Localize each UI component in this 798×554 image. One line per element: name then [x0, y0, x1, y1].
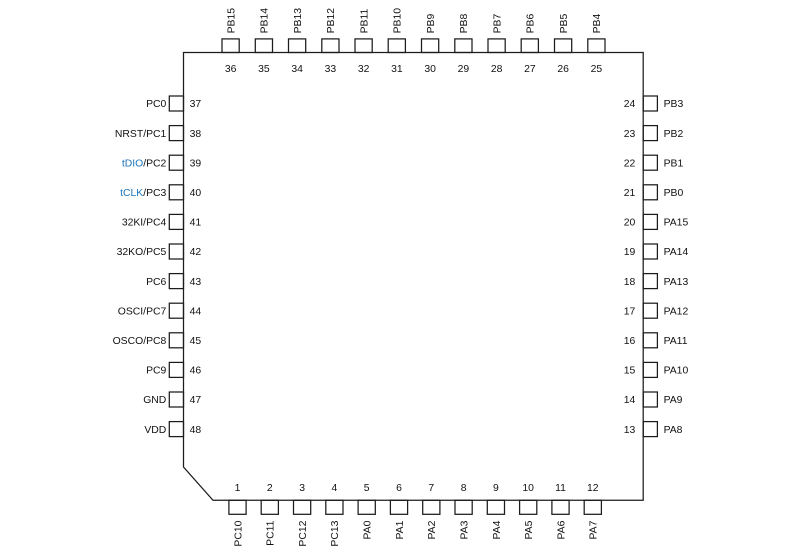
svg-text:PA2: PA2	[427, 520, 438, 539]
svg-text:PB13: PB13	[293, 8, 304, 34]
svg-text:PB15: PB15	[226, 8, 237, 34]
svg-text:31: 31	[391, 64, 403, 75]
svg-text:tCLK/PC3: tCLK/PC3	[120, 188, 166, 199]
svg-text:23: 23	[624, 129, 636, 140]
svg-text:PB3: PB3	[664, 99, 684, 110]
svg-text:11: 11	[555, 483, 566, 494]
svg-text:41: 41	[190, 218, 202, 229]
svg-text:21: 21	[624, 188, 636, 199]
svg-text:34: 34	[291, 64, 303, 75]
svg-text:40: 40	[190, 188, 202, 199]
svg-text:PB11: PB11	[360, 9, 371, 34]
svg-text:PB6: PB6	[526, 14, 537, 34]
svg-text:PB4: PB4	[592, 14, 603, 34]
svg-text:1: 1	[235, 483, 241, 494]
svg-text:PB5: PB5	[559, 14, 570, 34]
svg-text:32KI/PC4: 32KI/PC4	[122, 218, 167, 229]
svg-text:GND: GND	[143, 395, 166, 406]
svg-text:PA7: PA7	[589, 520, 600, 539]
svg-text:PC0: PC0	[146, 99, 166, 110]
svg-text:32: 32	[358, 64, 370, 75]
svg-text:PA13: PA13	[664, 277, 689, 288]
svg-text:PA1: PA1	[395, 520, 406, 539]
svg-text:7: 7	[428, 483, 434, 494]
svg-text:46: 46	[190, 366, 202, 377]
svg-text:PB14: PB14	[260, 8, 271, 34]
svg-text:PA14: PA14	[664, 247, 689, 258]
svg-text:16: 16	[624, 336, 636, 347]
svg-text:PB7: PB7	[493, 14, 504, 34]
svg-text:VDD: VDD	[144, 425, 166, 436]
svg-text:PC9: PC9	[146, 366, 166, 377]
svg-text:24: 24	[624, 99, 636, 110]
svg-text:PA5: PA5	[524, 520, 535, 539]
svg-text:PB12: PB12	[326, 8, 337, 34]
svg-text:PA0: PA0	[363, 520, 374, 539]
svg-text:48: 48	[190, 425, 202, 436]
svg-text:PA15: PA15	[664, 218, 689, 229]
svg-text:14: 14	[624, 395, 636, 406]
svg-text:3: 3	[299, 483, 305, 494]
svg-text:35: 35	[258, 64, 270, 75]
svg-text:15: 15	[624, 366, 636, 377]
svg-text:28: 28	[491, 64, 503, 75]
svg-text:13: 13	[624, 425, 636, 436]
svg-text:PA12: PA12	[664, 307, 689, 318]
svg-text:8: 8	[461, 483, 467, 494]
svg-text:6: 6	[396, 483, 402, 494]
svg-text:PB8: PB8	[459, 14, 470, 34]
svg-text:32KO/PC5: 32KO/PC5	[117, 247, 167, 258]
svg-text:PA10: PA10	[664, 366, 689, 377]
svg-text:33: 33	[325, 64, 337, 75]
svg-text:PB1: PB1	[664, 158, 684, 169]
svg-text:OSCO/PC8: OSCO/PC8	[113, 336, 167, 347]
svg-text:PB10: PB10	[393, 8, 404, 34]
svg-text:36: 36	[225, 64, 237, 75]
svg-text:42: 42	[190, 247, 202, 258]
svg-text:30: 30	[424, 64, 436, 75]
svg-text:PA3: PA3	[459, 520, 470, 539]
svg-text:PC13: PC13	[330, 520, 341, 546]
svg-text:38: 38	[190, 129, 202, 140]
svg-text:18: 18	[624, 277, 636, 288]
svg-text:PC6: PC6	[146, 277, 166, 288]
svg-text:PA8: PA8	[664, 425, 683, 436]
svg-text:25: 25	[591, 64, 603, 75]
svg-text:OSCI/PC7: OSCI/PC7	[118, 307, 167, 318]
svg-text:PA11: PA11	[664, 336, 688, 347]
svg-text:26: 26	[557, 64, 569, 75]
svg-text:PA4: PA4	[492, 520, 503, 539]
svg-text:PA6: PA6	[556, 520, 567, 539]
svg-text:PC10: PC10	[233, 520, 244, 546]
svg-text:29: 29	[458, 64, 470, 75]
svg-text:9: 9	[493, 483, 499, 494]
svg-text:45: 45	[190, 336, 202, 347]
svg-text:17: 17	[624, 307, 636, 318]
svg-text:19: 19	[624, 247, 636, 258]
svg-text:27: 27	[524, 64, 536, 75]
svg-text:NRST/PC1: NRST/PC1	[115, 129, 167, 140]
svg-text:4: 4	[332, 483, 338, 494]
svg-text:PB9: PB9	[426, 14, 437, 34]
svg-text:PB2: PB2	[664, 129, 684, 140]
svg-text:PC11: PC11	[266, 520, 277, 545]
svg-text:20: 20	[624, 218, 636, 229]
svg-text:22: 22	[624, 158, 636, 169]
svg-text:39: 39	[190, 158, 202, 169]
svg-text:43: 43	[190, 277, 202, 288]
svg-text:12: 12	[587, 483, 599, 494]
svg-text:44: 44	[190, 307, 202, 318]
svg-text:PB0: PB0	[664, 188, 684, 199]
svg-text:2: 2	[267, 483, 273, 494]
svg-text:tDIO/PC2: tDIO/PC2	[122, 158, 167, 169]
svg-text:PA9: PA9	[664, 395, 683, 406]
svg-text:37: 37	[190, 99, 202, 110]
svg-text:10: 10	[522, 483, 534, 494]
svg-text:5: 5	[364, 483, 370, 494]
svg-text:PC12: PC12	[298, 520, 309, 546]
svg-text:47: 47	[190, 395, 202, 406]
